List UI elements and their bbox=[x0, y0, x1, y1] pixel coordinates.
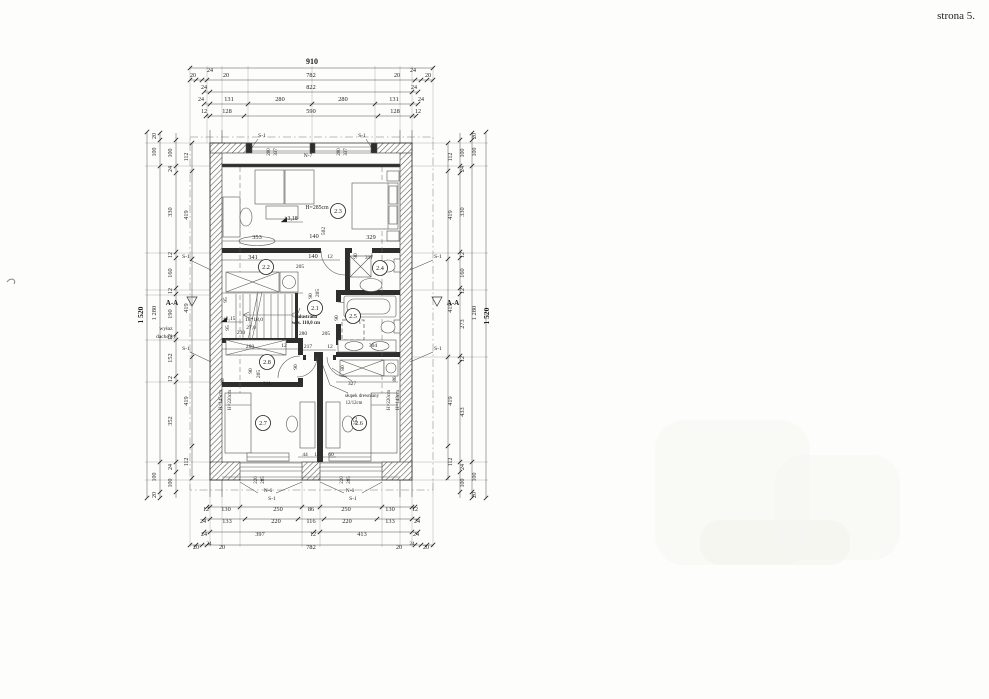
dim-label: 230 bbox=[237, 330, 246, 336]
dim-label: 341 bbox=[248, 254, 257, 261]
room-number: 2.2 bbox=[262, 264, 270, 271]
sink bbox=[345, 342, 363, 351]
dim-label: 280 bbox=[246, 344, 255, 350]
dim-label: 90 bbox=[248, 368, 254, 374]
dim-label: 24 bbox=[414, 519, 420, 525]
dim-label: 273 bbox=[459, 319, 466, 328]
dim-label: S-1 bbox=[358, 133, 366, 139]
dim-label: 131 bbox=[389, 96, 398, 103]
dim-label: 24 bbox=[410, 542, 416, 547]
dim-label: wyłaz bbox=[159, 326, 173, 332]
room-number: 2.7 bbox=[259, 420, 267, 427]
dim-label: 12 bbox=[168, 288, 174, 294]
dim-label: S-1 bbox=[268, 496, 276, 502]
dim-label: 152 bbox=[167, 353, 174, 362]
dim-label: 86 bbox=[221, 378, 226, 384]
dim-label: H=285cm bbox=[305, 205, 329, 211]
dim-label: 20 bbox=[394, 73, 400, 79]
single-bed bbox=[371, 393, 397, 453]
dim-label: 1 520 bbox=[482, 307, 491, 324]
dim-label: 280 bbox=[275, 96, 284, 103]
dim-label: N-6 bbox=[264, 488, 273, 494]
dim-label: balustrada bbox=[295, 315, 318, 320]
dim-label: 190 bbox=[167, 309, 174, 318]
dim-label: 220 bbox=[342, 518, 351, 525]
dim-label: 304 bbox=[369, 343, 378, 349]
dim-label: 280 bbox=[299, 331, 308, 337]
dim-label: 18*18,0 bbox=[245, 317, 263, 323]
dim-label: 20 bbox=[472, 133, 478, 139]
dim-label: 12 bbox=[314, 452, 320, 458]
dim-label: H=145cm bbox=[219, 390, 224, 410]
desk bbox=[326, 402, 340, 448]
dim-label: 12 bbox=[460, 356, 466, 362]
dim-label: 12 bbox=[201, 109, 207, 115]
dim-label: 20 bbox=[396, 545, 402, 551]
dim-label: 20 bbox=[190, 73, 196, 79]
dim-label: S-1 bbox=[434, 254, 442, 260]
dim-label: 280 bbox=[338, 96, 347, 103]
dim-label: 419 bbox=[447, 303, 454, 312]
nightstand bbox=[387, 231, 399, 241]
dim-label: 24 bbox=[418, 97, 424, 103]
dim-label: 12 bbox=[327, 254, 333, 260]
chair bbox=[287, 416, 298, 432]
room-number: 2.4 bbox=[376, 265, 384, 272]
dim-label: 285 bbox=[347, 476, 352, 484]
dim-label: S-1 bbox=[182, 346, 190, 352]
scanned-floor-plan-page: strona 5. bbox=[0, 0, 989, 699]
dim-label: 128 bbox=[390, 108, 399, 115]
dim-label: 100 bbox=[152, 473, 158, 482]
dim-label: 280 bbox=[337, 148, 342, 156]
dim-label: H=220cm bbox=[228, 390, 233, 410]
dim-label: 44 bbox=[302, 452, 308, 458]
pillow bbox=[389, 206, 397, 224]
dim-label: 419 bbox=[183, 396, 190, 405]
dim-label: 130 bbox=[221, 506, 230, 513]
dim-label: 95 bbox=[225, 325, 231, 331]
dim-label: 24 bbox=[198, 97, 204, 103]
floor-plan-svg: 2.32.22.42.12.52.82.72.6 910202420782202… bbox=[0, 0, 989, 699]
dim-label: 1 280 bbox=[471, 306, 478, 321]
dim-label: 12 bbox=[281, 343, 287, 349]
room-number: 2.3 bbox=[334, 208, 342, 215]
dim-label: A-A bbox=[166, 299, 178, 307]
dim-label: S-1 bbox=[182, 254, 190, 260]
dim-label: N-7 bbox=[304, 153, 313, 159]
dim-label: 419 bbox=[183, 210, 190, 219]
lintel-beam bbox=[222, 164, 400, 167]
desk bbox=[223, 197, 240, 237]
dim-label: 502 bbox=[321, 227, 327, 236]
dim-label: 1 280 bbox=[151, 306, 158, 321]
dim-label: 220 bbox=[271, 518, 280, 525]
wooden-post bbox=[314, 352, 323, 361]
dim-label: 782 bbox=[306, 544, 315, 551]
dim-label: 12 bbox=[168, 376, 174, 382]
dim-label: 352 bbox=[353, 417, 359, 426]
dim-label: 337 bbox=[344, 148, 349, 156]
dim-label: 100 bbox=[460, 479, 466, 488]
dim-label: 330 bbox=[167, 207, 174, 216]
dim-label: 27,0 bbox=[246, 325, 256, 331]
room-number: 2.8 bbox=[263, 359, 271, 366]
dim-label: 116 bbox=[306, 518, 315, 525]
dim-label: 352 bbox=[167, 416, 174, 425]
stair-break-line bbox=[248, 292, 258, 340]
dim-label: 12 bbox=[203, 507, 209, 513]
dim-label: 20 bbox=[425, 73, 431, 79]
dim-label: S-1 bbox=[258, 133, 266, 139]
dim-label: 24 bbox=[201, 85, 207, 91]
dim-label: 100 bbox=[472, 148, 478, 157]
dim-label: 20 bbox=[219, 545, 225, 551]
wardrobe bbox=[285, 170, 314, 204]
dim-label: 311 bbox=[263, 381, 271, 387]
dim-label: 24 bbox=[460, 166, 466, 172]
dim-label: 20 bbox=[152, 492, 158, 498]
dim-label: 20 bbox=[472, 492, 478, 498]
dim-label: 822 bbox=[306, 84, 315, 91]
window-jamb bbox=[246, 143, 252, 153]
dim-label: 90 bbox=[293, 364, 299, 370]
dim-label: 24 bbox=[411, 85, 417, 91]
dim-label: 20 bbox=[193, 545, 199, 551]
dim-label: słupek drewniany bbox=[345, 394, 380, 399]
dim-label: 12 bbox=[460, 288, 466, 294]
dim-label: 12 bbox=[460, 252, 466, 258]
dim-label: 397 bbox=[255, 531, 264, 538]
dim-label: +3,18 bbox=[284, 216, 298, 222]
dim-label: 90 bbox=[334, 315, 340, 321]
dim-label: +2,15 bbox=[223, 316, 236, 322]
dim-label: 12 bbox=[415, 109, 421, 115]
dim-label: 24 bbox=[168, 464, 174, 470]
dim-label: S-1 bbox=[434, 346, 442, 352]
dim-label: 140 bbox=[309, 233, 318, 240]
desk bbox=[300, 402, 315, 448]
nightstand bbox=[387, 171, 399, 181]
dim-label: 24 bbox=[200, 519, 206, 525]
dim-label: 112 bbox=[184, 153, 190, 162]
dim-label: 24 bbox=[207, 68, 213, 74]
dim-label: 782 bbox=[306, 72, 315, 79]
dim-label: 220 bbox=[340, 476, 345, 484]
window-mullion bbox=[310, 143, 315, 153]
dim-label: 160 bbox=[167, 268, 174, 277]
dim-label: 86 bbox=[308, 506, 314, 513]
dim-label: 413 bbox=[357, 531, 366, 538]
chair bbox=[240, 208, 252, 226]
dim-label: 100 bbox=[168, 479, 174, 488]
dim-label: 353 bbox=[252, 234, 261, 241]
dim-label: 130 bbox=[385, 506, 394, 513]
pillow bbox=[389, 186, 397, 204]
dim-label: 90 bbox=[308, 293, 314, 299]
dim-label: 12 bbox=[310, 532, 316, 538]
dim-label: 419 bbox=[447, 396, 454, 405]
dim-label: 140 bbox=[308, 253, 317, 260]
dim-label: 12 bbox=[168, 252, 174, 258]
dim-label: 205 bbox=[296, 264, 305, 270]
dim-label: 100 bbox=[460, 149, 466, 158]
dim-label: 327 bbox=[348, 381, 357, 387]
dim-label: 24 bbox=[207, 542, 213, 547]
dim-label: wys. 110,0 cm bbox=[292, 321, 320, 326]
dim-label: 100 bbox=[168, 149, 174, 158]
dim-label: dachowy bbox=[156, 334, 176, 340]
dim-label: 133 bbox=[222, 518, 231, 525]
dim-label: 24 bbox=[410, 68, 416, 74]
dim-label: H=220cm bbox=[387, 390, 392, 410]
dim-label: 131 bbox=[224, 96, 233, 103]
dim-label: 590 bbox=[306, 108, 315, 115]
dim-label: 217 bbox=[304, 344, 313, 350]
dim-label: 280 bbox=[267, 148, 272, 156]
dim-label: 419 bbox=[183, 303, 190, 312]
dim-label: 112 bbox=[448, 458, 454, 467]
room-number: 2.1 bbox=[311, 305, 319, 312]
dim-label: 100 bbox=[472, 473, 478, 482]
dim-label: 12/12cm bbox=[346, 401, 363, 406]
dim-label: 205 bbox=[315, 289, 321, 298]
scan-ghost bbox=[655, 420, 900, 565]
dim-label: 112 bbox=[448, 153, 454, 162]
dim-label: H=143cm bbox=[396, 390, 401, 410]
pen-mark bbox=[7, 279, 15, 284]
dim-label: 86 bbox=[393, 376, 398, 382]
dim-label: 60 bbox=[328, 452, 334, 458]
dim-label: 285 bbox=[261, 476, 266, 484]
dim-label: 160 bbox=[459, 268, 466, 277]
dim-label: 250 bbox=[273, 506, 282, 513]
dim-label: 20 bbox=[152, 133, 158, 139]
dim-label: 133 bbox=[385, 518, 394, 525]
dim-label: 329 bbox=[366, 234, 375, 241]
dim-label: 250 bbox=[341, 506, 350, 513]
room-number: 2.5 bbox=[349, 313, 357, 320]
dim-label: 205 bbox=[322, 331, 331, 337]
sink bbox=[360, 279, 382, 292]
dim-label: 24 bbox=[413, 532, 419, 538]
toilet bbox=[381, 321, 395, 333]
page-number: strona 5. bbox=[937, 10, 975, 22]
dim-label: 20 bbox=[423, 545, 429, 551]
dim-label: 128 bbox=[222, 108, 231, 115]
dim-label: 24 bbox=[201, 532, 207, 538]
dim-label: 24 bbox=[460, 464, 466, 470]
dim-label: 205 bbox=[256, 370, 262, 379]
wardrobe bbox=[255, 170, 284, 204]
dim-label: 24 bbox=[168, 166, 174, 172]
dim-label: 20 bbox=[223, 73, 229, 79]
dim-label: 910 bbox=[306, 57, 318, 66]
dim-label: 317 bbox=[365, 255, 374, 261]
dim-label: 12 bbox=[412, 507, 418, 513]
dim-label: 330 bbox=[459, 207, 466, 216]
dim-label: 1 520 bbox=[136, 306, 145, 323]
dim-label: 95 bbox=[223, 297, 229, 303]
dim-label: N-6 bbox=[346, 488, 355, 494]
dim-label: 433 bbox=[459, 407, 466, 416]
dim-label: 337 bbox=[274, 148, 279, 156]
dim-label: 220 bbox=[254, 476, 259, 484]
dim-label: 100 bbox=[152, 148, 158, 157]
dim-label: S-1 bbox=[349, 496, 357, 502]
dim-label: 112 bbox=[184, 458, 190, 467]
dim-label: 80 bbox=[340, 365, 346, 371]
dim-label: 419 bbox=[447, 210, 454, 219]
dim-label: 90 bbox=[353, 253, 359, 259]
dim-label: 12 bbox=[327, 344, 333, 350]
